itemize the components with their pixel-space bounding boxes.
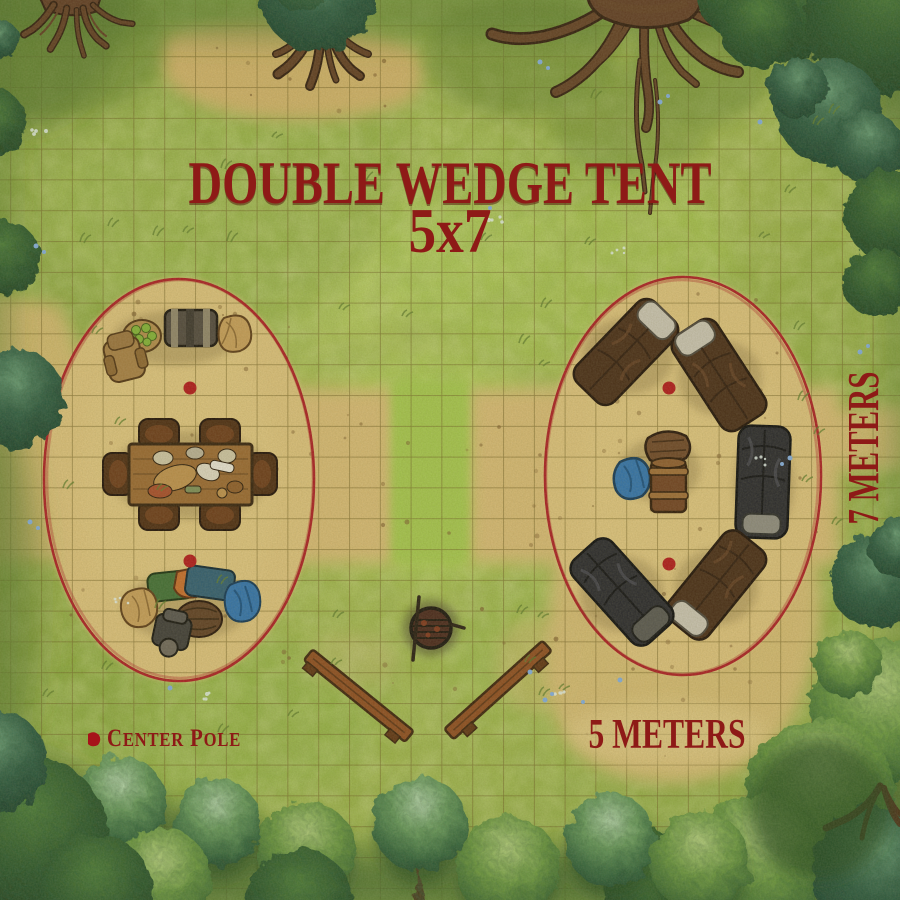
svg-text:5 METERS: 5 METERS xyxy=(589,712,746,758)
svg-text:5x7: 5x7 xyxy=(409,195,492,266)
svg-text:CENTER POLE: CENTER POLE xyxy=(107,724,241,751)
svg-text:7 METERS: 7 METERS xyxy=(839,372,888,525)
